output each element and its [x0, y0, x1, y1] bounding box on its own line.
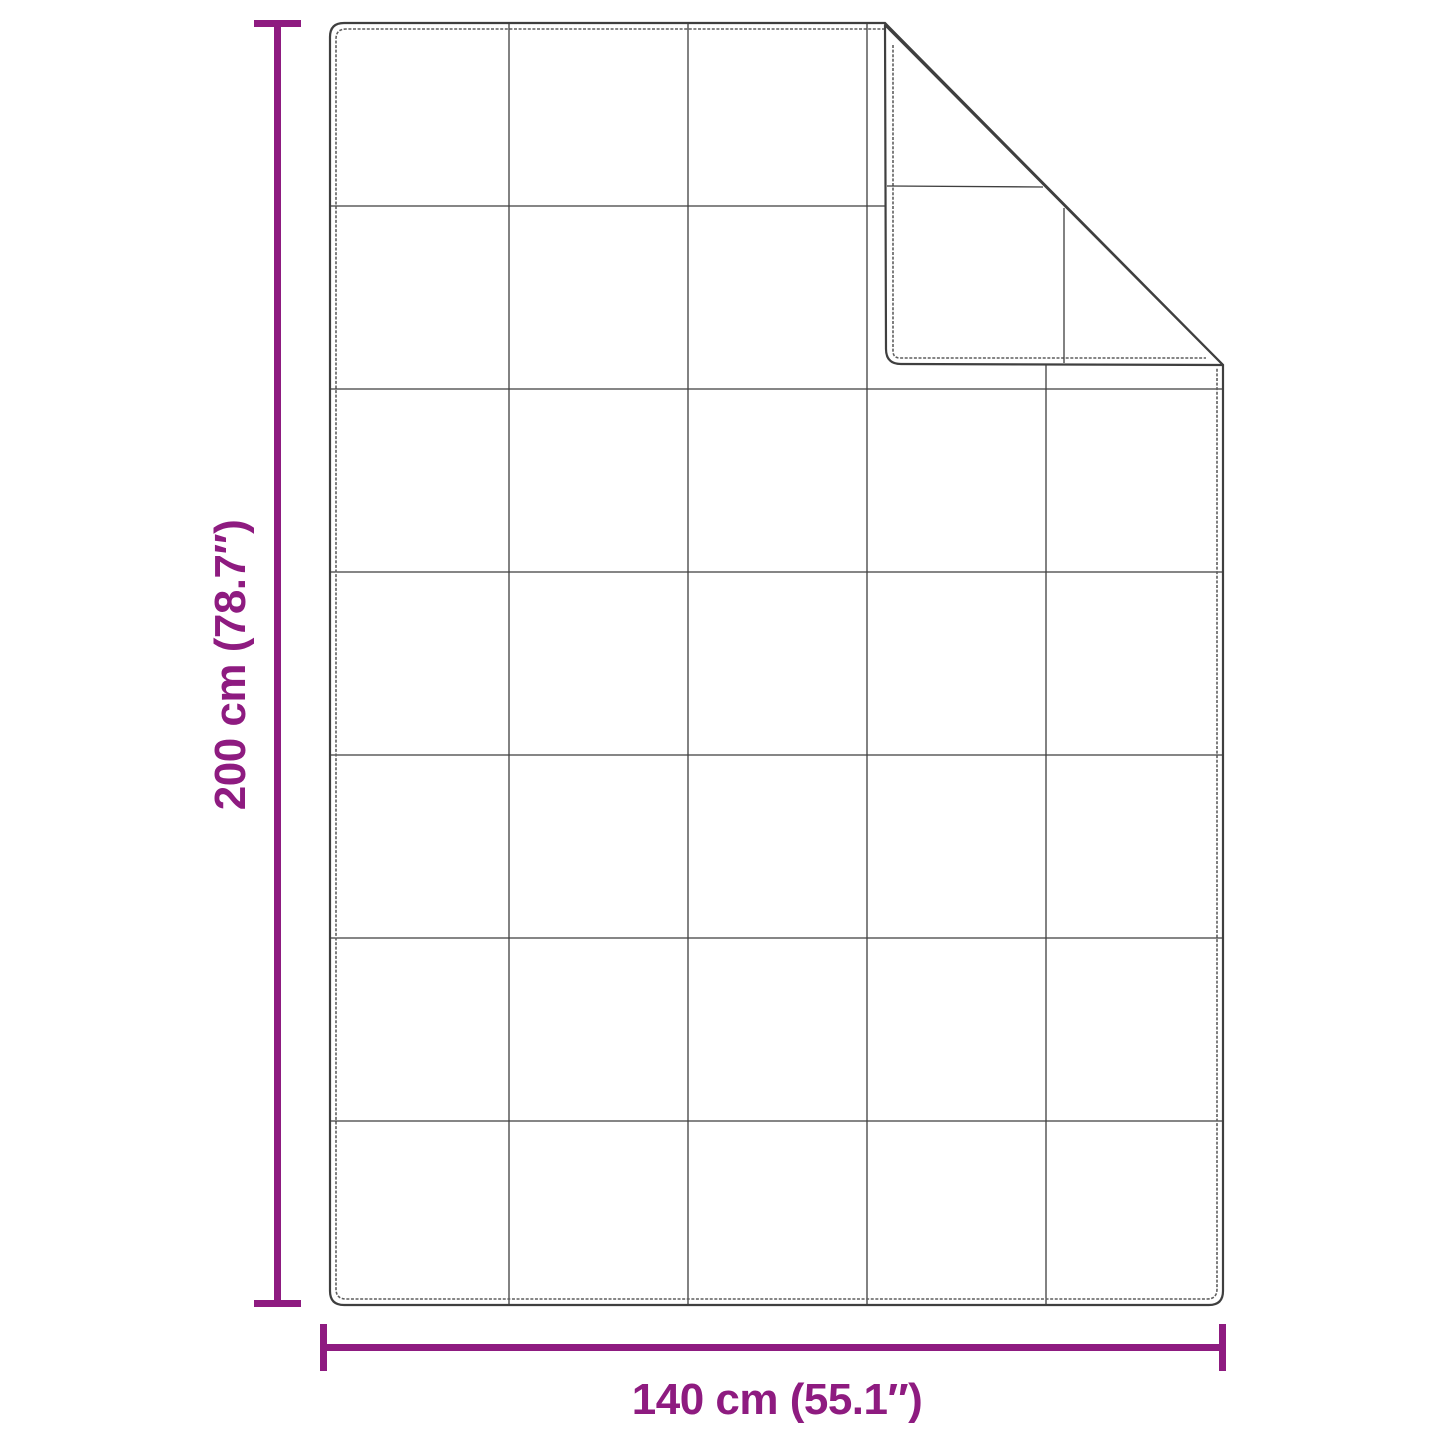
height-dimension-line: [274, 23, 281, 1307]
height-dimension-cap-top: [254, 20, 301, 27]
folded-corner-outline: [885, 25, 1223, 365]
dimension-diagram: 200 cm (78.7″) 140 cm (55.1″): [0, 0, 1445, 1445]
width-dimension-line: [322, 1344, 1226, 1351]
blanket-body-outline: [330, 23, 1223, 1305]
blanket-body: [330, 23, 1223, 1305]
height-dimension-cap-bottom: [254, 1300, 301, 1307]
width-dimension-label: 140 cm (55.1″): [632, 1375, 922, 1425]
width-dimension-cap-left: [320, 1324, 327, 1371]
blanket-folded-corner: [885, 25, 1223, 365]
width-dimension-cap-right: [1219, 1324, 1226, 1371]
height-dimension-label: 200 cm (78.7″): [206, 520, 256, 810]
